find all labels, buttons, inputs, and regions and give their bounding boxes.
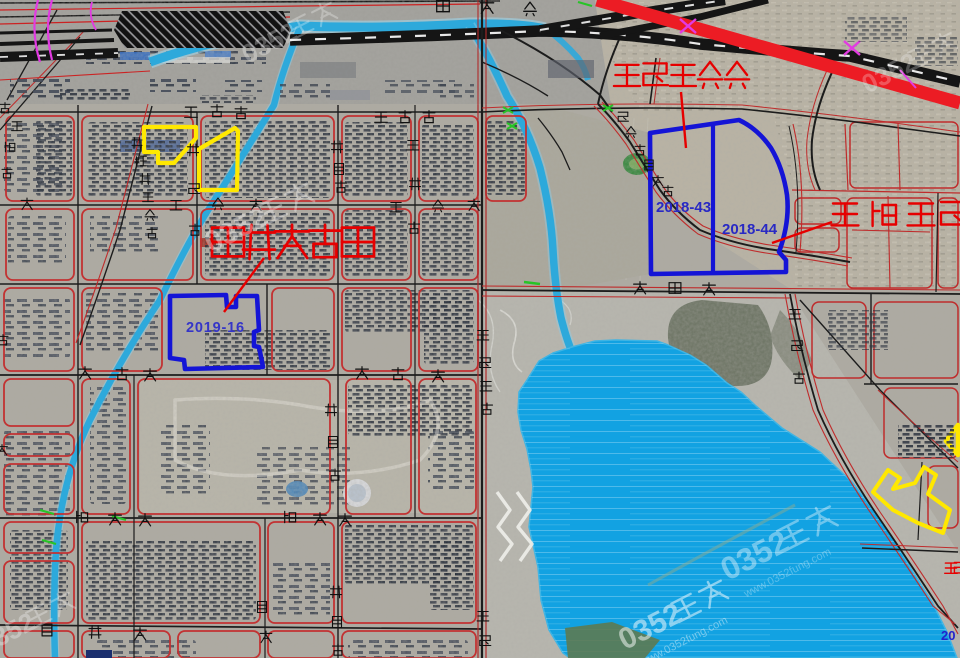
- svg-text:2018-44: 2018-44: [722, 221, 778, 238]
- svg-text:2019-16: 2019-16: [186, 320, 245, 336]
- svg-text:20: 20: [941, 628, 955, 643]
- svg-text:2018-43: 2018-43: [656, 199, 711, 216]
